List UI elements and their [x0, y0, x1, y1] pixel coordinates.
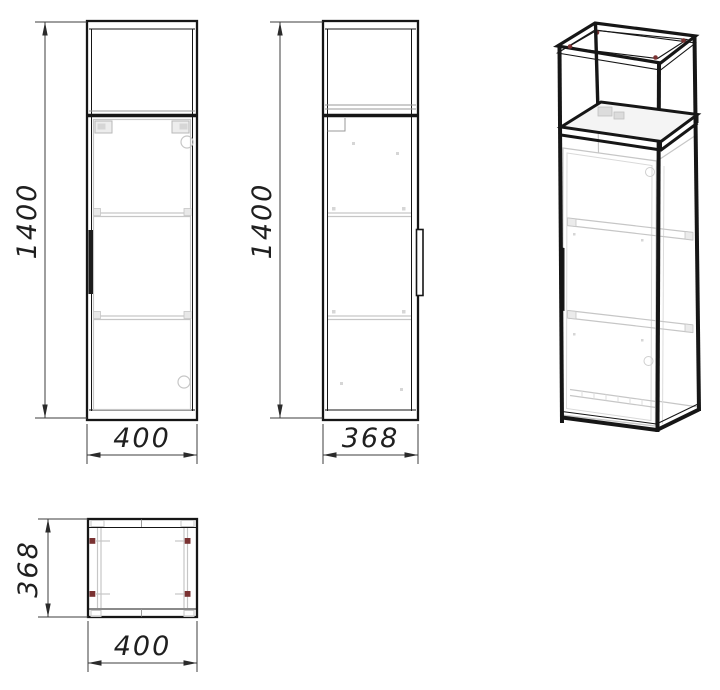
iso-cabinet-front-face: [563, 148, 657, 426]
front-hinge-right-detail: [180, 124, 188, 130]
front-hinge-left-detail: [98, 124, 106, 130]
isometric-view: [558, 23, 700, 432]
side-height-label: 1400: [247, 183, 278, 260]
side-door-handle: [417, 230, 424, 296]
front-width-dimension: 400: [87, 423, 197, 464]
top-depth-dimension: 368: [13, 519, 88, 617]
iso-corner-fastener-icon: [681, 38, 686, 43]
corner-fastener-icon: [90, 538, 96, 544]
technical-drawing-canvas: 1400 400: [0, 0, 720, 690]
corner-fastener-icon: [90, 591, 96, 597]
top-frame-outline: [88, 519, 197, 617]
iso-post-front-left: [560, 47, 563, 423]
iso-top-frame-outer: [558, 23, 696, 63]
arrow-right-icon: [184, 660, 198, 665]
top-width-dimension: 400: [88, 621, 197, 672]
arrow-down-icon: [277, 405, 282, 419]
front-door-handle: [89, 230, 94, 294]
top-depth-label: 368: [13, 540, 44, 598]
arrow-left-icon: [323, 452, 337, 457]
side-frame-outline: [323, 21, 418, 420]
arrow-right-icon: [184, 452, 198, 457]
side-width-dimension: 368: [323, 423, 418, 464]
arrow-left-icon: [88, 660, 102, 665]
iso-side-panel-edge: [663, 166, 665, 424]
arrow-down-icon: [45, 604, 50, 618]
iso-corner-fastener-icon: [568, 44, 573, 49]
arrow-up-icon: [42, 22, 47, 36]
side-width-label: 368: [342, 423, 400, 454]
arrow-down-icon: [42, 405, 47, 419]
front-view: 1400 400: [12, 21, 197, 464]
technical-drawing-page: 1400 400: [0, 0, 720, 690]
front-height-label: 1400: [12, 183, 43, 260]
arrow-right-icon: [405, 452, 419, 457]
top-view: 368 400: [13, 519, 197, 672]
iso-post-back-right: [695, 36, 700, 411]
iso-mid-shelf: [561, 102, 698, 150]
arrow-up-icon: [45, 519, 50, 533]
arrow-left-icon: [87, 452, 101, 457]
front-height-dimension: 1400: [12, 22, 87, 418]
top-width-label: 400: [114, 631, 172, 662]
front-width-label: 400: [113, 423, 171, 454]
arrow-up-icon: [277, 22, 282, 36]
corner-fastener-icon: [185, 538, 191, 544]
side-view: 1400 368: [247, 21, 423, 464]
corner-fastener-icon: [185, 591, 191, 597]
front-frame-outline: [87, 21, 197, 420]
side-height-dimension: 1400: [247, 22, 323, 418]
iso-corner-fastener-icon: [653, 55, 658, 60]
